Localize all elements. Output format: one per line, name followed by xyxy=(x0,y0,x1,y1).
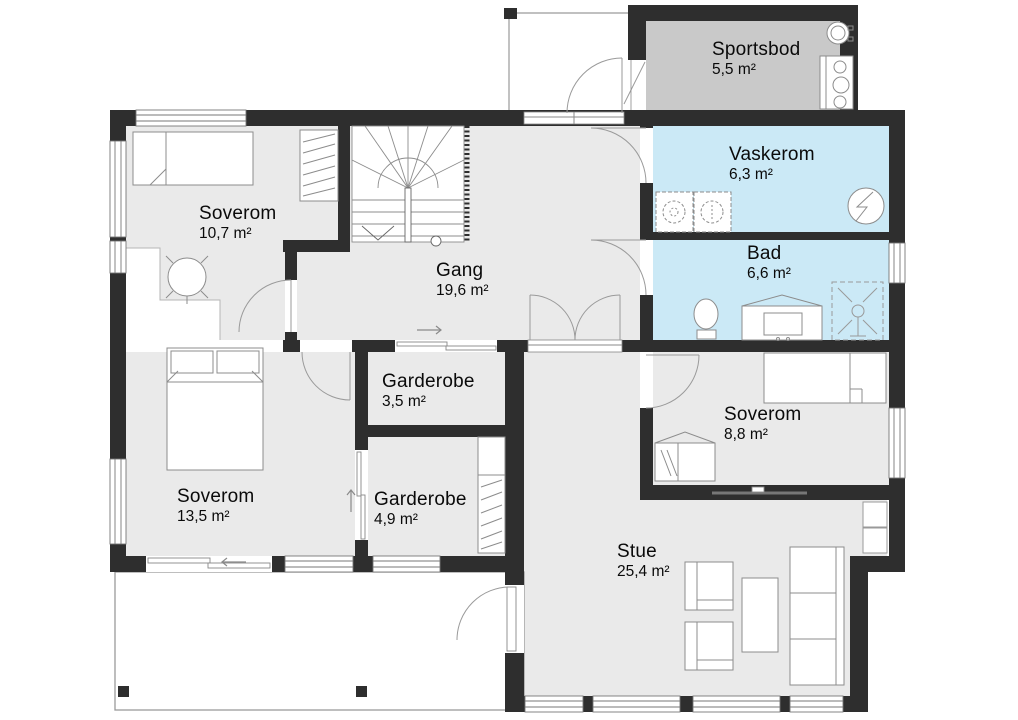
room-area: 25,4 m² xyxy=(617,562,670,581)
room-label-garderobe-2: Garderobe 4,9 m² xyxy=(374,489,467,529)
sliding-door-garderobe-2 xyxy=(355,450,368,540)
room-label-soverom-1: Soverom 10,7 m² xyxy=(199,203,276,243)
window-soverom-3-right xyxy=(889,408,905,478)
room-area: 3,5 m² xyxy=(382,392,475,411)
room-area: 13,5 m² xyxy=(177,507,254,526)
armchair-icon xyxy=(685,562,733,610)
double-bed-icon xyxy=(167,348,263,470)
room-label-vaskerom: Vaskerom 6,3 m² xyxy=(729,144,815,184)
room-name: Garderobe xyxy=(374,489,467,510)
window-soverom-2-bottom-2 xyxy=(373,556,440,572)
floor-plan: Sportsbod 5,5 m² Vaskerom 6,3 m² Bad 6,6… xyxy=(0,0,1018,720)
room-area: 10,7 m² xyxy=(199,224,276,243)
coffee-table-icon xyxy=(742,578,778,652)
room-name: Gang xyxy=(436,260,489,281)
room-name: Soverom xyxy=(177,486,254,507)
window-left-2 xyxy=(110,241,126,273)
room-name: Soverom xyxy=(199,203,276,224)
room-area: 19,6 m² xyxy=(436,281,489,300)
terrace-post xyxy=(118,686,129,697)
room-name: Bad xyxy=(747,243,791,264)
room-area: 6,6 m² xyxy=(747,264,791,283)
room-label-soverom-2: Soverom 13,5 m² xyxy=(177,486,254,526)
single-bed-icon xyxy=(764,353,886,403)
room-name: Garderobe xyxy=(382,371,475,392)
window-stue-3 xyxy=(693,696,780,712)
washing-machine-icon xyxy=(656,192,693,232)
room-area: 5,5 m² xyxy=(712,60,800,79)
room-name: Stue xyxy=(617,541,670,562)
room-name: Vaskerom xyxy=(729,144,815,165)
window-stue-4 xyxy=(790,696,843,712)
single-bed-icon xyxy=(133,132,253,185)
window-stue-1 xyxy=(525,696,583,712)
floor-plan-drawing xyxy=(0,0,1018,720)
window-soverom-2-bottom-1 xyxy=(285,556,353,572)
room-label-soverom-3: Soverom 8,8 m² xyxy=(724,404,801,444)
window-stue-2 xyxy=(593,696,680,712)
room-label-garderobe-1: Garderobe 3,5 m² xyxy=(382,371,475,411)
room-area: 8,8 m² xyxy=(724,425,801,444)
window-soverom-1-top xyxy=(136,110,246,126)
window-left-3 xyxy=(110,459,126,544)
cabinet-icon xyxy=(863,502,887,553)
stairs-icon xyxy=(352,126,467,246)
water-heater-icon xyxy=(848,188,884,224)
entry-door xyxy=(524,58,624,124)
wardrobe-icon xyxy=(478,437,505,553)
room-area: 4,9 m² xyxy=(374,510,467,529)
technical-cabinet-icon xyxy=(820,56,853,109)
wardrobe-icon xyxy=(300,130,338,201)
room-label-sportsbod: Sportsbod 5,5 m² xyxy=(712,39,800,79)
sliding-door-garderobe-1 xyxy=(395,340,497,352)
dryer-icon xyxy=(694,192,731,232)
sliding-door-terrace-soverom-2 xyxy=(146,556,272,572)
room-label-gang: Gang 19,6 m² xyxy=(436,260,489,300)
room-name: Sportsbod xyxy=(712,39,800,60)
door-sportsbod xyxy=(624,60,646,110)
room-label-stue: Stue 25,4 m² xyxy=(617,541,670,581)
terrace xyxy=(115,572,524,710)
room-area: 6,3 m² xyxy=(729,165,815,184)
room-name: Soverom xyxy=(724,404,801,425)
room-label-bad: Bad 6,6 m² xyxy=(747,243,791,283)
window-left-1 xyxy=(110,141,126,237)
sofa-icon xyxy=(790,547,844,685)
toilet-icon xyxy=(694,299,718,339)
window-bad-right xyxy=(889,243,905,283)
porch-post xyxy=(504,8,517,19)
terrace-post xyxy=(356,686,367,697)
armchair-icon xyxy=(685,622,733,670)
